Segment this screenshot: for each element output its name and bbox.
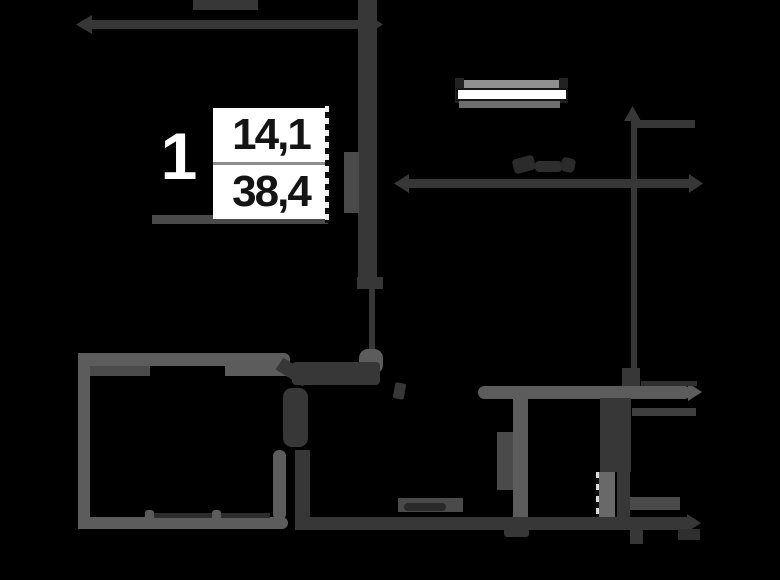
room-top-wall-under-left <box>85 366 150 376</box>
glazing-line-2 <box>220 513 270 518</box>
label-dashed-line <box>325 106 329 223</box>
watermark-blob-1 <box>511 154 536 174</box>
mid-dim-line <box>408 179 692 188</box>
wall-nub-1 <box>145 510 154 520</box>
vert-dim-line <box>631 120 637 387</box>
hall-wall-top-line <box>641 381 697 386</box>
roof-stub <box>193 0 258 10</box>
area-box: 14,1 38,4 <box>213 108 325 219</box>
vert-dim-arrow-up <box>624 106 641 121</box>
floor-plan-canvas: 1 14,1 38,4 <box>0 0 780 580</box>
pre-wall-block <box>622 368 640 386</box>
utility-block-marks <box>404 503 446 511</box>
window-frame <box>456 88 568 101</box>
wall-nub-2 <box>212 510 221 520</box>
apartment-label: 1 14,1 38,4 <box>0 0 780 580</box>
upper-wall-vertical <box>358 0 377 281</box>
total-area-value: 38,4 <box>213 165 325 219</box>
door-tick <box>393 382 407 400</box>
dim-branch-line <box>637 120 695 128</box>
area-divider <box>213 162 325 165</box>
upper-wall-thin <box>369 283 375 351</box>
mid-dim-arrow-right <box>689 174 703 193</box>
room-bottom-wall <box>78 517 288 529</box>
room-left-wall <box>78 353 90 529</box>
bath-wall-vertical <box>513 398 528 520</box>
living-area-value: 14,1 <box>213 108 325 162</box>
upper-wall-side-block <box>344 152 359 213</box>
bar-below-hall-wall <box>632 408 696 416</box>
stub-below-right <box>678 529 700 540</box>
hall-wall <box>478 386 691 399</box>
duct-block <box>600 398 631 472</box>
window-top-bar <box>458 80 562 88</box>
watermark-blob-2 <box>535 161 562 172</box>
top-dim-line <box>90 20 372 29</box>
bath-door-block <box>497 432 513 490</box>
stub-below-bath <box>504 528 529 537</box>
label-underline-wall <box>152 215 328 224</box>
window-sill-bar <box>459 101 560 108</box>
glazing-line-1 <box>153 513 212 518</box>
mid-dim-arrow-left <box>394 174 409 193</box>
room-right-wall-seg <box>273 450 286 520</box>
watermark-blob-3 <box>560 157 577 174</box>
room-count-label: 1 <box>150 122 208 190</box>
top-dim-arrow-left <box>76 15 92 34</box>
bottom-right-bar <box>630 497 680 510</box>
door-band-vert <box>283 388 308 447</box>
stub-below-duct <box>630 529 643 544</box>
